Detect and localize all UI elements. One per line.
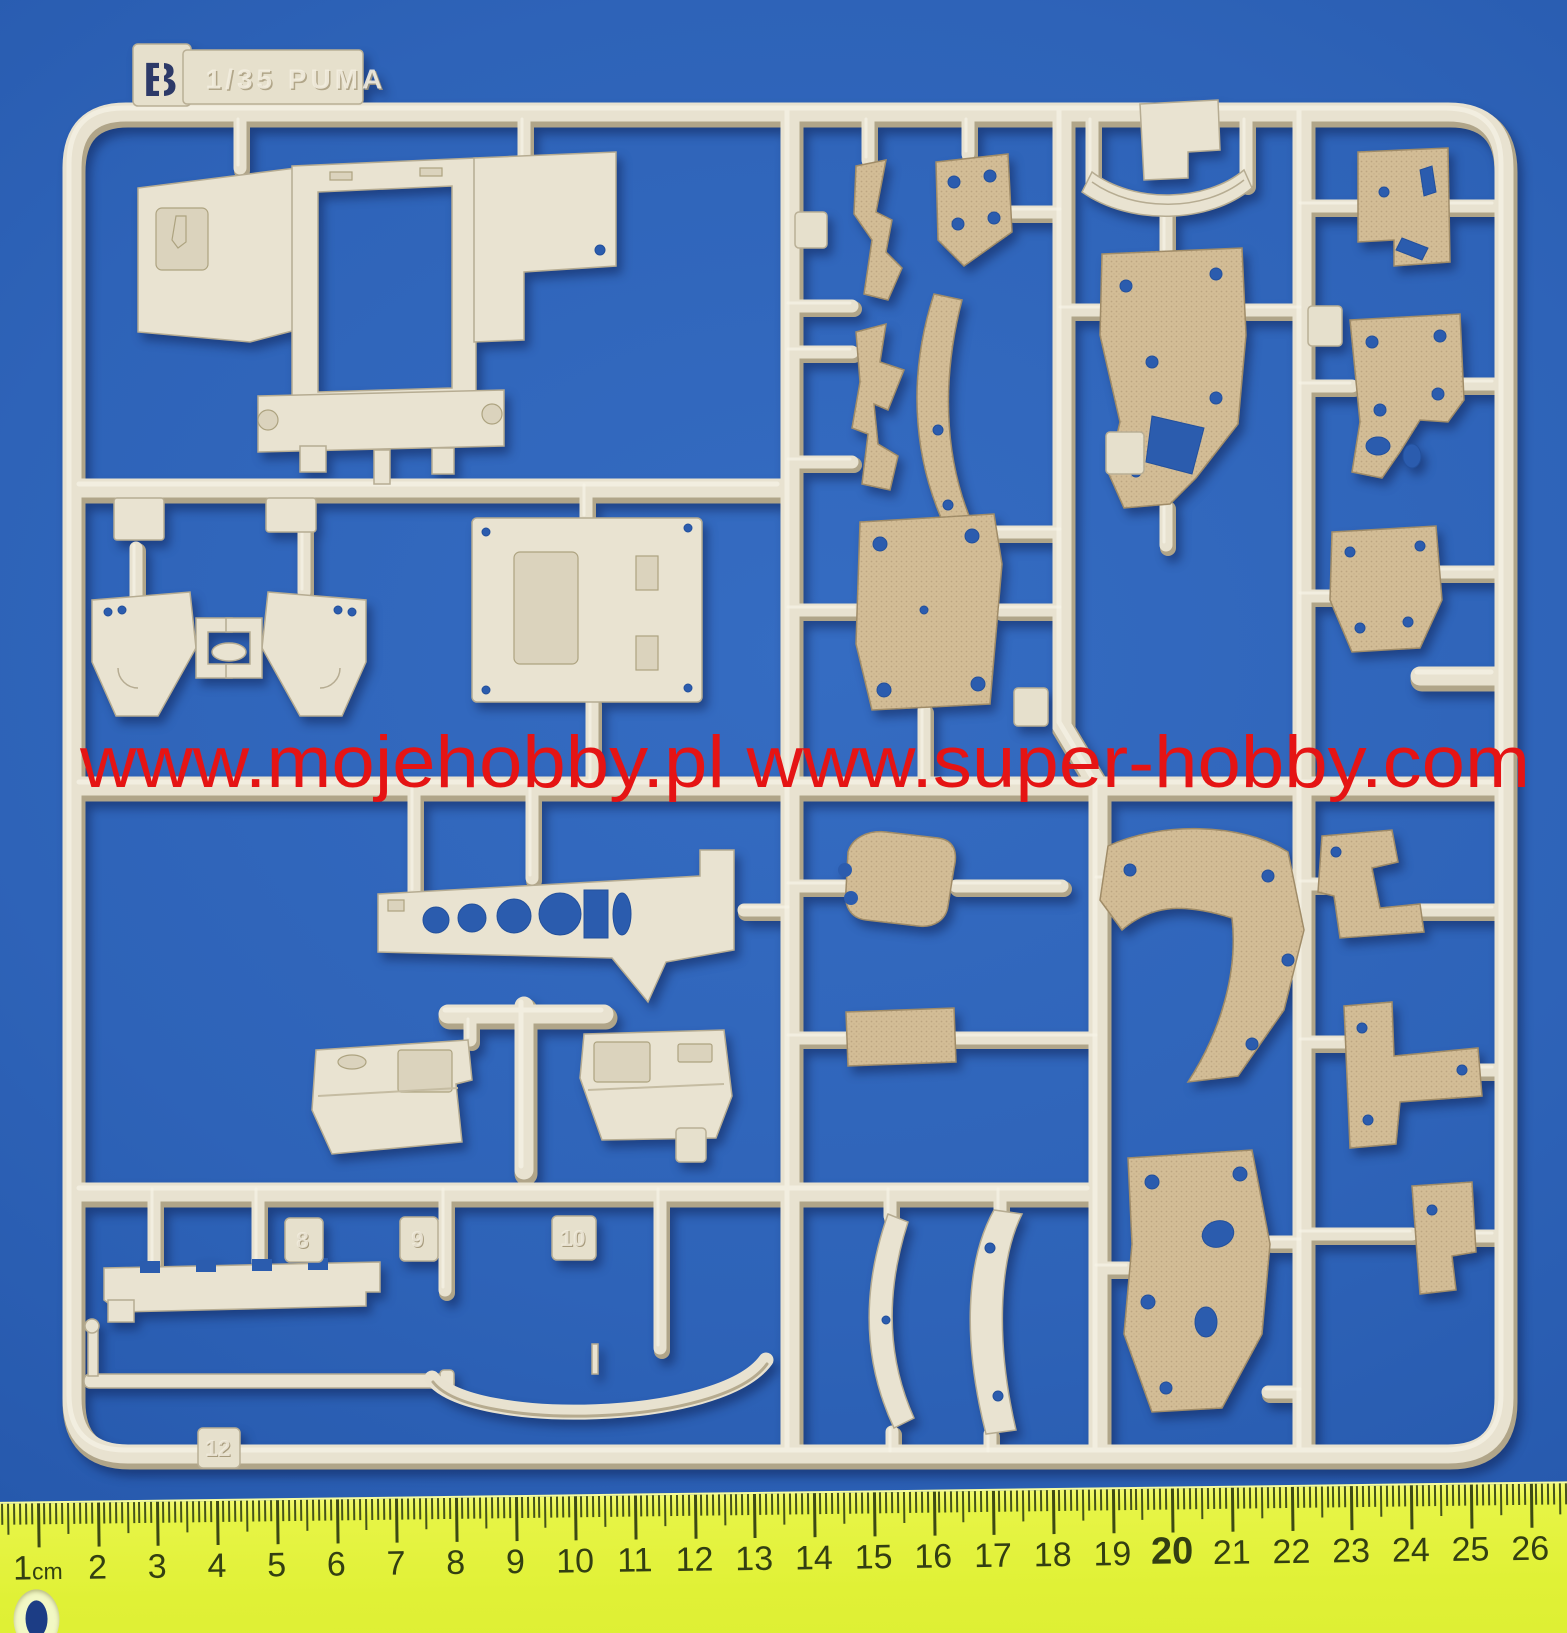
ruler-tick bbox=[968, 1491, 970, 1512]
ruler-tick bbox=[1386, 1486, 1388, 1507]
ruler-tick bbox=[980, 1491, 982, 1512]
ruler-tick bbox=[1273, 1487, 1275, 1508]
ruler-tick bbox=[1374, 1486, 1376, 1507]
ruler-tick bbox=[861, 1493, 863, 1514]
ruler-tick bbox=[365, 1499, 367, 1530]
ruler-tick bbox=[73, 1503, 75, 1524]
watermark-text: www.mojehobby.pl www.super-hobby.com bbox=[79, 722, 1530, 803]
ruler-tick bbox=[915, 1492, 917, 1513]
ruler-tick bbox=[1559, 1483, 1561, 1514]
ruler-tick bbox=[246, 1501, 248, 1532]
ruler-number: 22 bbox=[1272, 1533, 1310, 1572]
ruler-tick bbox=[658, 1495, 660, 1516]
ruler-tick bbox=[115, 1502, 117, 1523]
ruler-tick bbox=[712, 1495, 714, 1516]
ruler-tick bbox=[926, 1492, 928, 1513]
ruler-tick bbox=[353, 1499, 355, 1520]
ruler-tick bbox=[1535, 1484, 1537, 1505]
ruler-tick bbox=[1392, 1486, 1394, 1507]
ruler-tick bbox=[1488, 1484, 1490, 1505]
ruler-tick bbox=[156, 1502, 160, 1546]
ruler-tick bbox=[1207, 1488, 1209, 1509]
ruler-tick bbox=[324, 1500, 326, 1521]
ruler-tick bbox=[867, 1492, 869, 1513]
ruler-tick bbox=[252, 1501, 254, 1522]
ruler-tick bbox=[1470, 1485, 1474, 1529]
ruler-tick bbox=[79, 1503, 81, 1524]
ruler-number: 19 bbox=[1093, 1535, 1131, 1574]
ruler-tick bbox=[610, 1496, 612, 1517]
ruler-tick bbox=[1380, 1486, 1382, 1517]
ruler-tick bbox=[1243, 1488, 1245, 1509]
ruler-tick bbox=[706, 1495, 708, 1516]
ruler-tick bbox=[431, 1498, 433, 1519]
ruler-tick bbox=[67, 1503, 69, 1534]
ruler-tick bbox=[1064, 1490, 1066, 1511]
ruler-hole-inner bbox=[25, 1600, 47, 1633]
ruler-tick bbox=[700, 1495, 702, 1516]
ruler-tick bbox=[109, 1502, 111, 1523]
ruler-number: 26 bbox=[1511, 1530, 1549, 1569]
ruler-number: 20 bbox=[1151, 1530, 1194, 1574]
ruler-tick bbox=[222, 1501, 224, 1522]
ruler-tick bbox=[885, 1492, 887, 1513]
ruler-tick bbox=[97, 1503, 101, 1547]
ruler-tick bbox=[294, 1500, 296, 1521]
ruler-tick bbox=[515, 1497, 519, 1541]
ruler-tick bbox=[1291, 1487, 1295, 1531]
ruler-tick bbox=[419, 1498, 421, 1519]
ruler-tick bbox=[903, 1492, 905, 1523]
ruler-tick bbox=[831, 1493, 833, 1514]
ruler-tick bbox=[288, 1500, 290, 1521]
ruler-tick bbox=[425, 1498, 427, 1529]
ruler-tick bbox=[1547, 1484, 1549, 1505]
ruler-tick bbox=[1171, 1488, 1175, 1532]
ruler-tick bbox=[198, 1501, 200, 1522]
ruler-tick bbox=[1058, 1490, 1060, 1511]
ruler-tick bbox=[1112, 1489, 1116, 1533]
ruler-tick bbox=[1464, 1485, 1466, 1506]
ruler-tick bbox=[1016, 1491, 1018, 1512]
ruler-tick bbox=[377, 1499, 379, 1520]
ruler-tick bbox=[204, 1501, 206, 1522]
ruler-tick bbox=[318, 1500, 320, 1521]
ruler-tick bbox=[1362, 1486, 1364, 1507]
ruler-tick bbox=[1314, 1487, 1316, 1508]
ruler-tick bbox=[210, 1501, 212, 1522]
ruler-tick bbox=[49, 1503, 51, 1524]
ruler-tick bbox=[127, 1502, 129, 1533]
ruler-tick bbox=[628, 1496, 630, 1517]
ruler-tick bbox=[228, 1501, 230, 1522]
ruler-tick bbox=[186, 1501, 188, 1532]
ruler-tick bbox=[335, 1499, 339, 1543]
ruler-tick bbox=[162, 1502, 164, 1523]
ruler-tick bbox=[646, 1495, 648, 1516]
ruler-tick bbox=[873, 1492, 877, 1536]
watermark-overlay: www.mojehobby.pl www.super-hobby.com bbox=[0, 0, 1567, 1633]
ruler-tick bbox=[801, 1493, 803, 1514]
ruler-tick bbox=[330, 1500, 332, 1521]
ruler-tick bbox=[1249, 1487, 1251, 1508]
ruler-tick bbox=[300, 1500, 302, 1521]
ruler-tick bbox=[234, 1501, 236, 1522]
ruler-tick bbox=[91, 1503, 93, 1524]
ruler-tick bbox=[133, 1502, 135, 1523]
ruler-tick bbox=[443, 1498, 445, 1519]
ruler-tick bbox=[622, 1496, 624, 1517]
ruler-tick bbox=[694, 1495, 698, 1539]
ruler-tick bbox=[509, 1497, 511, 1518]
ruler-tick bbox=[1356, 1486, 1358, 1507]
ruler-tick bbox=[586, 1496, 588, 1517]
ruler-tick bbox=[1141, 1489, 1143, 1520]
ruler-tick bbox=[1500, 1484, 1502, 1515]
ruler-tick bbox=[1219, 1488, 1221, 1509]
ruler-tick bbox=[43, 1503, 45, 1524]
ruler-tick bbox=[747, 1494, 749, 1515]
ruler-tick bbox=[413, 1498, 415, 1519]
ruler-tick bbox=[843, 1493, 845, 1524]
ruler-tick bbox=[1529, 1484, 1533, 1528]
ruler-tick bbox=[1309, 1487, 1311, 1508]
ruler-number: 15 bbox=[854, 1538, 892, 1577]
ruler-tick bbox=[897, 1492, 899, 1513]
ruler-tick bbox=[437, 1498, 439, 1519]
ruler-tick bbox=[461, 1498, 463, 1519]
ruler-tick bbox=[1410, 1485, 1414, 1529]
ruler-tick bbox=[449, 1498, 451, 1519]
ruler-tick bbox=[1052, 1490, 1056, 1534]
photo-stage: B 1/35 PUMA 1/35 PUMA bbox=[0, 0, 1567, 1633]
ruler-tick bbox=[1482, 1484, 1484, 1505]
ruler-tick bbox=[1332, 1486, 1334, 1507]
ruler-tick bbox=[1428, 1485, 1430, 1506]
ruler-tick bbox=[1004, 1491, 1006, 1512]
ruler-tick bbox=[938, 1492, 940, 1513]
ruler-tick bbox=[538, 1497, 540, 1518]
ruler-tick bbox=[347, 1499, 349, 1520]
ruler-number: 3 bbox=[148, 1548, 167, 1587]
ruler-tick bbox=[503, 1497, 505, 1518]
ruler-tick bbox=[789, 1493, 791, 1514]
ruler-tick bbox=[1297, 1487, 1299, 1508]
ruler-tick bbox=[753, 1494, 757, 1538]
ruler-tick bbox=[37, 1503, 41, 1547]
ruler-tick bbox=[467, 1498, 469, 1519]
ruler-tick bbox=[401, 1499, 403, 1520]
ruler-tick bbox=[61, 1503, 63, 1524]
ruler-tick bbox=[1106, 1489, 1108, 1510]
ruler-tick bbox=[682, 1495, 684, 1516]
ruler-tick bbox=[891, 1492, 893, 1513]
ruler-number: 13 bbox=[735, 1540, 773, 1579]
ruler-tick bbox=[479, 1498, 481, 1519]
ruler-tick bbox=[1, 1504, 3, 1525]
ruler-tick bbox=[270, 1500, 272, 1521]
ruler-number: 7 bbox=[386, 1545, 405, 1584]
ruler-tick bbox=[1237, 1488, 1239, 1509]
ruler-tick bbox=[592, 1496, 594, 1517]
ruler-tick bbox=[1398, 1486, 1400, 1507]
ruler-tick bbox=[676, 1495, 678, 1516]
ruler-tick bbox=[395, 1499, 399, 1543]
ruler-tick bbox=[1285, 1487, 1287, 1508]
ruler-tick bbox=[813, 1493, 817, 1537]
ruler-tick bbox=[783, 1494, 785, 1525]
ruler-tick bbox=[1261, 1487, 1263, 1518]
ruler-tick bbox=[1494, 1484, 1496, 1505]
ruler-tick bbox=[724, 1494, 726, 1525]
ruler-tick bbox=[879, 1492, 881, 1513]
ruler-tick bbox=[103, 1502, 105, 1523]
ruler-tick bbox=[485, 1497, 487, 1528]
ruler-tick bbox=[1040, 1490, 1042, 1511]
ruler-tick bbox=[568, 1496, 570, 1517]
ruler-number: 24 bbox=[1392, 1531, 1430, 1570]
ruler-tick bbox=[556, 1497, 558, 1518]
ruler-tick bbox=[932, 1492, 936, 1536]
ruler-tick bbox=[1440, 1485, 1442, 1516]
ruler-tick bbox=[1201, 1488, 1203, 1519]
ruler-tick bbox=[371, 1499, 373, 1520]
ruler-tick bbox=[1452, 1485, 1454, 1506]
ruler-tick bbox=[1350, 1486, 1354, 1530]
ruler-tick bbox=[1517, 1484, 1519, 1505]
ruler-number: 25 bbox=[1451, 1530, 1489, 1569]
ruler-tick bbox=[1183, 1488, 1185, 1509]
ruler-number: 5 bbox=[267, 1546, 286, 1585]
ruler-tick bbox=[13, 1504, 15, 1525]
ruler-tick bbox=[1446, 1485, 1448, 1506]
ruler-tick bbox=[1213, 1488, 1215, 1509]
ruler-tick bbox=[956, 1491, 958, 1512]
ruler-number: 17 bbox=[974, 1537, 1012, 1576]
ruler-tick bbox=[771, 1494, 773, 1515]
ruler-tick bbox=[634, 1496, 638, 1540]
ruler-number: 9 bbox=[506, 1543, 525, 1582]
ruler-tick bbox=[1422, 1485, 1424, 1506]
ruler-tick bbox=[1094, 1490, 1096, 1511]
ruler-tick bbox=[31, 1503, 33, 1524]
ruler-number: 1cm bbox=[13, 1549, 63, 1589]
ruler-tick bbox=[580, 1496, 582, 1517]
ruler-tick bbox=[341, 1499, 343, 1520]
ruler-tick bbox=[1165, 1489, 1167, 1510]
ruler-tick bbox=[174, 1502, 176, 1523]
ruler-tick bbox=[1541, 1484, 1543, 1505]
ruler-tick bbox=[974, 1491, 976, 1512]
ruler-tick bbox=[1147, 1489, 1149, 1510]
ruler-tick bbox=[85, 1503, 87, 1524]
ruler-tick bbox=[652, 1495, 654, 1516]
ruler-number: 8 bbox=[446, 1544, 465, 1583]
ruler-tick bbox=[521, 1497, 523, 1518]
ruler-number: 4 bbox=[207, 1547, 226, 1586]
ruler-tick bbox=[765, 1494, 767, 1515]
ruler-tick bbox=[1177, 1488, 1179, 1509]
ruler-tick bbox=[25, 1503, 27, 1524]
ruler-tick bbox=[1123, 1489, 1125, 1510]
ruler-number: 18 bbox=[1034, 1536, 1072, 1575]
ruler-tick bbox=[359, 1499, 361, 1520]
ruler-hole bbox=[13, 1589, 60, 1633]
ruler-tick bbox=[1022, 1490, 1024, 1521]
ruler-tick bbox=[144, 1502, 146, 1523]
ruler-tick bbox=[1326, 1486, 1328, 1507]
ruler-tick bbox=[992, 1491, 996, 1535]
ruler-tick bbox=[598, 1496, 600, 1517]
ruler-tick bbox=[455, 1498, 459, 1542]
ruler-tick bbox=[759, 1494, 761, 1515]
ruler-tick bbox=[121, 1502, 123, 1523]
ruler-number: 21 bbox=[1213, 1533, 1251, 1572]
ruler-tick bbox=[562, 1496, 564, 1517]
ruler-tick bbox=[389, 1499, 391, 1520]
ruler-tick bbox=[807, 1493, 809, 1514]
ruler-tick bbox=[150, 1502, 152, 1523]
ruler-number: 16 bbox=[914, 1537, 952, 1576]
ruler-tick bbox=[962, 1491, 964, 1522]
ruler-tick bbox=[1129, 1489, 1131, 1510]
ruler-number: 10 bbox=[556, 1542, 594, 1581]
ruler-tick bbox=[944, 1491, 946, 1512]
ruler-tick bbox=[240, 1501, 242, 1522]
ruler-tick bbox=[1320, 1487, 1322, 1518]
ruler-tick bbox=[407, 1498, 409, 1519]
ruler-tick bbox=[1117, 1489, 1119, 1510]
ruler-number: 12 bbox=[675, 1541, 713, 1580]
ruler-tick bbox=[1076, 1490, 1078, 1511]
ruler-tick bbox=[1010, 1491, 1012, 1512]
ruler-tick bbox=[849, 1493, 851, 1514]
ruler-tick bbox=[837, 1493, 839, 1514]
ruler-tick bbox=[55, 1503, 57, 1524]
ruler-tick bbox=[688, 1495, 690, 1516]
ruler-tick bbox=[1070, 1490, 1072, 1511]
ruler-tick bbox=[920, 1492, 922, 1513]
ruler-tick bbox=[1368, 1486, 1370, 1507]
ruler-tick bbox=[527, 1497, 529, 1518]
ruler-tick bbox=[1506, 1484, 1508, 1505]
ruler-tick bbox=[1225, 1488, 1227, 1509]
ruler-tick bbox=[819, 1493, 821, 1514]
ruler-tick bbox=[1476, 1484, 1478, 1505]
ruler-tick bbox=[1279, 1487, 1281, 1508]
ruler-tick bbox=[532, 1497, 534, 1518]
ruler-tick bbox=[986, 1491, 988, 1512]
ruler-tick bbox=[1511, 1484, 1513, 1505]
ruler-tick bbox=[574, 1496, 578, 1540]
ruler-tick bbox=[1434, 1485, 1436, 1506]
ruler-number: 2 bbox=[88, 1548, 107, 1587]
ruler-tick bbox=[383, 1499, 385, 1520]
ruler-tick bbox=[1034, 1490, 1036, 1511]
ruler-tick bbox=[855, 1493, 857, 1514]
ruler-tick bbox=[138, 1502, 140, 1523]
ruler-tick bbox=[825, 1493, 827, 1514]
ruler-tick bbox=[1135, 1489, 1137, 1510]
ruler-tick bbox=[1195, 1488, 1197, 1509]
ruler-tick bbox=[491, 1497, 493, 1518]
ruler-tick bbox=[216, 1501, 220, 1545]
ruler-tick bbox=[1553, 1483, 1555, 1504]
ruler-tick bbox=[616, 1496, 618, 1517]
ruler-tick bbox=[640, 1495, 642, 1516]
ruler-tick bbox=[604, 1496, 606, 1527]
ruler-tick bbox=[1338, 1486, 1340, 1507]
ruler-tick bbox=[258, 1500, 260, 1521]
ruler-tick bbox=[550, 1497, 552, 1518]
ruler-tick bbox=[741, 1494, 743, 1515]
ruler-tick bbox=[735, 1494, 737, 1515]
ruler-number: 6 bbox=[327, 1545, 346, 1584]
ruler-tick bbox=[998, 1491, 1000, 1512]
ruler-tick bbox=[306, 1500, 308, 1531]
ruler-tick bbox=[795, 1493, 797, 1514]
ruler-tick bbox=[1303, 1487, 1305, 1508]
ruler-number: 23 bbox=[1332, 1532, 1370, 1571]
ruler-tick bbox=[909, 1492, 911, 1513]
ruler-tick bbox=[19, 1504, 21, 1525]
ruler-tick bbox=[497, 1497, 499, 1518]
ruler-tick bbox=[777, 1494, 779, 1515]
ruler-tick bbox=[729, 1494, 731, 1515]
ruler-tick bbox=[950, 1491, 952, 1512]
ruler-tick bbox=[544, 1497, 546, 1528]
ruler-tick bbox=[1404, 1485, 1406, 1506]
ruler-tick bbox=[1523, 1484, 1525, 1505]
ruler-tick bbox=[473, 1498, 475, 1519]
ruler-number: 14 bbox=[795, 1539, 833, 1578]
ruler-tick bbox=[168, 1502, 170, 1523]
ruler-tick bbox=[1088, 1490, 1090, 1511]
ruler-tick bbox=[1416, 1485, 1418, 1506]
ruler-tick bbox=[670, 1495, 672, 1516]
ruler: 1cm2345678910111213141516171819202122232… bbox=[0, 1481, 1567, 1633]
ruler-tick bbox=[180, 1501, 182, 1522]
ruler-tick bbox=[1046, 1490, 1048, 1511]
ruler-tick bbox=[1028, 1490, 1030, 1511]
ruler-tick bbox=[192, 1501, 194, 1522]
ruler-tick bbox=[312, 1500, 314, 1521]
ruler-tick bbox=[1458, 1485, 1460, 1506]
ruler-tick bbox=[7, 1504, 9, 1535]
ruler-tick bbox=[264, 1500, 266, 1521]
ruler-tick bbox=[1159, 1489, 1161, 1510]
ruler-tick bbox=[1344, 1486, 1346, 1507]
ruler-tick bbox=[1231, 1488, 1235, 1532]
ruler-tick bbox=[1153, 1489, 1155, 1510]
ruler-tick bbox=[282, 1500, 284, 1521]
ruler-tick bbox=[1082, 1490, 1084, 1521]
ruler-tick bbox=[1189, 1488, 1191, 1509]
ruler-tick bbox=[276, 1500, 280, 1544]
ruler-tick bbox=[1267, 1487, 1269, 1508]
ruler-tick bbox=[718, 1494, 720, 1515]
ruler-tick bbox=[1100, 1489, 1102, 1510]
ruler-tick bbox=[1255, 1487, 1257, 1508]
ruler-tick bbox=[664, 1495, 666, 1526]
ruler-number: 11 bbox=[617, 1541, 653, 1580]
